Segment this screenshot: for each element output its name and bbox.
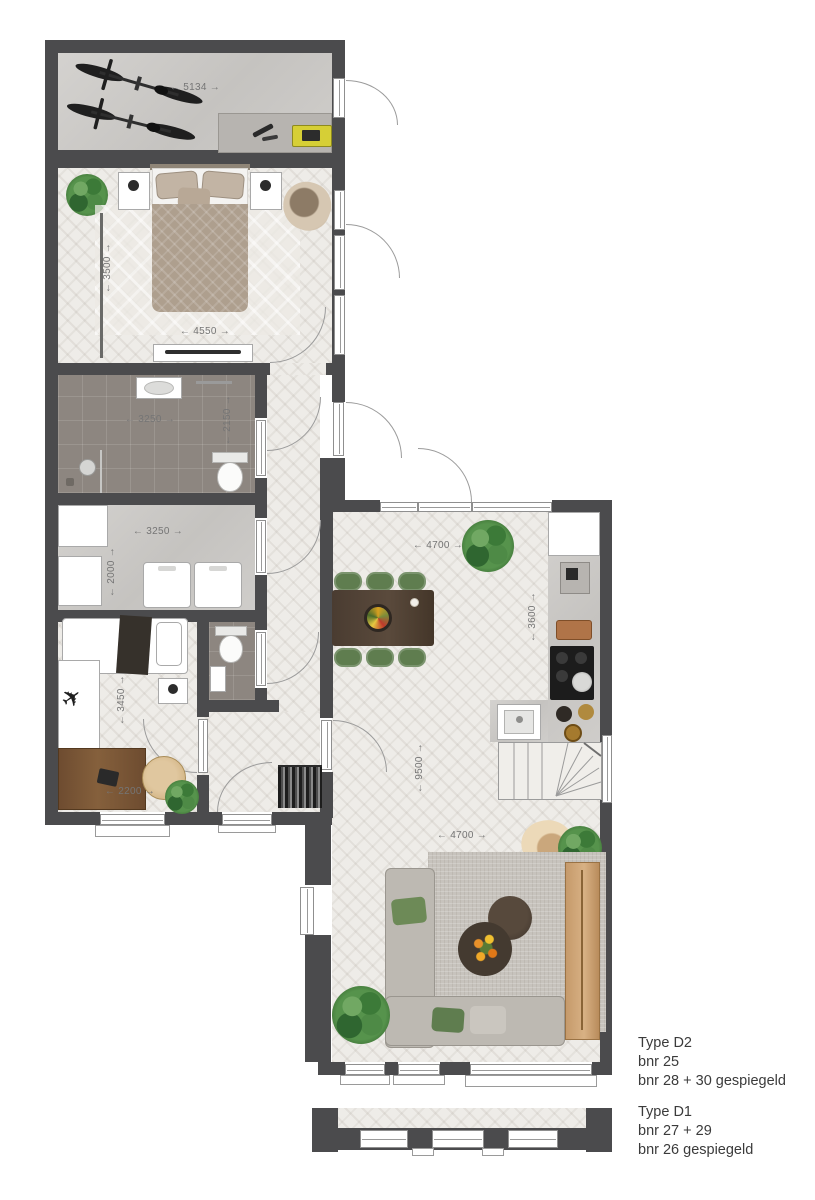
neighbour-window <box>360 1130 408 1148</box>
dim-utility-depth: ← 2000 → <box>106 537 118 607</box>
wall <box>255 622 267 630</box>
wall <box>255 575 267 610</box>
plant <box>332 986 390 1044</box>
fridge <box>548 512 600 556</box>
coffee-machine-detail <box>566 568 578 580</box>
cabinet-handle <box>581 870 583 1030</box>
entrance-door-swing <box>346 402 402 458</box>
dining-chair <box>334 572 362 591</box>
nightstand <box>118 172 150 210</box>
legend-type-d1: Type D1 bnr 27 + 29 bnr 26 gespiegeld <box>638 1103 813 1160</box>
dining-chair <box>366 572 394 591</box>
dining-chair <box>398 648 426 667</box>
dryer-detail <box>209 566 227 571</box>
staircase <box>498 742 602 800</box>
lamp-icon <box>168 684 178 694</box>
wall <box>305 935 331 1062</box>
entrance-door-threshold <box>333 402 344 456</box>
living-bottom-window <box>470 1064 592 1075</box>
faucet-icon <box>516 716 523 723</box>
sofa-cushion <box>470 1006 506 1034</box>
dim-bedroom2-depth: ← 3450 → <box>116 665 128 735</box>
living-window-sill <box>393 1075 445 1085</box>
washer-detail <box>158 566 176 571</box>
wall <box>45 493 267 505</box>
living-window-sill <box>340 1075 390 1085</box>
cutting-board <box>556 620 592 640</box>
shower-head-icon <box>79 459 96 476</box>
hall-terrace-door-threshold <box>222 814 272 825</box>
tv-icon <box>165 350 241 354</box>
bedroom2-door-threshold <box>198 719 208 773</box>
dim-storage-width: ← 5134 → <box>145 82 245 94</box>
fruit-bowl <box>364 604 392 632</box>
living-left-window <box>300 887 314 935</box>
legend-d2-line: bnr 28 + 30 gespiegeld <box>638 1072 813 1091</box>
pan-icon <box>572 672 592 692</box>
bedroom1-door-threshold-floor <box>270 363 326 375</box>
dining-chair <box>334 648 362 667</box>
wall <box>318 1062 345 1075</box>
bed-duvet <box>152 204 248 312</box>
wall <box>332 500 380 512</box>
wall <box>332 375 345 402</box>
burner <box>556 652 568 664</box>
dim-bathroom-width: ← 3250 → <box>115 414 185 426</box>
wall <box>255 375 267 418</box>
lamp-icon <box>128 180 139 191</box>
neighbour-floor-strip <box>330 1108 592 1128</box>
wall <box>255 505 267 518</box>
wall <box>165 812 222 825</box>
living-bottom-window <box>398 1064 440 1075</box>
living-window-sill <box>465 1075 597 1087</box>
wall <box>385 1062 398 1075</box>
neighbour-wall <box>312 1108 338 1152</box>
nightstand <box>250 172 282 210</box>
dim-kitchen-depth: ← 3600 → <box>527 582 539 652</box>
wall <box>440 1062 470 1075</box>
wall <box>45 812 100 825</box>
utility-door-threshold <box>256 520 266 573</box>
neighbour-sill-detail <box>412 1148 434 1156</box>
sofa-cushion-green <box>431 1007 465 1033</box>
wall <box>255 478 267 493</box>
toilet-bowl <box>217 462 243 492</box>
bedroom1-window <box>334 295 345 355</box>
living-terrace-door-swing <box>418 448 472 502</box>
legend-d2-line: bnr 25 <box>638 1053 813 1072</box>
bedroom2-window-sill <box>95 825 170 837</box>
utility-cabinet <box>58 556 102 606</box>
neighbour-window <box>508 1130 558 1148</box>
living-top-window <box>472 502 552 512</box>
hall-living-door-threshold <box>321 720 332 770</box>
storage-door-threshold <box>333 78 345 118</box>
dining-chair <box>398 572 426 591</box>
dim-living-length: ← 9500 → <box>414 733 426 803</box>
legend-d1-line: bnr 27 + 29 <box>638 1122 813 1141</box>
towel-bar <box>196 381 232 384</box>
bedroom1-window <box>334 190 345 230</box>
dim-living-width: ← 4700 → <box>427 830 497 842</box>
wall <box>326 363 345 375</box>
living-terrace-door <box>418 502 472 512</box>
bathroom-door-threshold <box>256 420 266 476</box>
wall <box>197 700 279 712</box>
toolbox-latch <box>302 130 320 141</box>
bedroom2-window <box>100 814 165 825</box>
sink-basin <box>144 381 174 395</box>
living-top-window <box>380 502 418 512</box>
wall <box>305 812 331 885</box>
plant <box>165 780 199 814</box>
dim-bathroom-depth: ← 2150 → <box>222 385 234 455</box>
shower-drain <box>66 478 74 486</box>
burner <box>556 670 568 682</box>
bowl-icon <box>564 724 582 742</box>
table-decor <box>410 598 419 607</box>
dining-chair <box>366 648 394 667</box>
neighbour-sill-detail <box>482 1148 504 1156</box>
floorplan-canvas: ← 5134 → ← 3500 → ← 4550 → ← 3250 → ← 21… <box>0 0 815 1200</box>
legend-type-d2: Type D2 bnr 25 bnr 28 + 30 gespiegeld <box>638 1034 813 1091</box>
stairwell-window <box>602 735 612 803</box>
coffee-table-flowers <box>458 922 512 976</box>
burner <box>575 652 587 664</box>
living-bottom-window <box>345 1064 385 1075</box>
dim-bedroom2-width: ← 2200 → <box>95 786 165 798</box>
dim-utility-width: ← 3250 → <box>123 526 193 538</box>
wc-door-threshold <box>256 632 266 686</box>
dim-bedroom1-width: ← 4550 → <box>165 326 245 338</box>
neighbour-wall <box>586 1108 612 1152</box>
wc-toilet-bowl <box>219 635 243 663</box>
utility-cabinet <box>58 505 108 547</box>
wall <box>45 363 270 375</box>
bedroom1-balcony-door-swing <box>346 224 400 278</box>
lamp-icon <box>260 180 271 191</box>
dim-bedroom1-depth: ← 3500 → <box>102 233 114 303</box>
legend-d1-title: Type D1 <box>638 1103 813 1122</box>
dim-living-top-width: ← 4700 → <box>403 540 473 552</box>
neighbour-window <box>432 1130 484 1148</box>
wc-sink <box>210 666 226 692</box>
legend-d2-title: Type D2 <box>638 1034 813 1053</box>
pillow <box>156 622 182 666</box>
shower-glass <box>100 450 102 493</box>
wall <box>45 40 345 53</box>
coat-rack <box>278 765 322 808</box>
legend-d1-line: bnr 26 gespiegeld <box>638 1141 813 1160</box>
wall <box>592 1062 612 1075</box>
sofa-cushion-green <box>391 896 428 925</box>
bowl-icon <box>578 704 594 720</box>
bedroom1-balcony-door <box>334 235 345 290</box>
hall-door-step <box>218 825 276 833</box>
bowl-icon <box>556 706 572 722</box>
storage-door-swing <box>346 80 398 125</box>
